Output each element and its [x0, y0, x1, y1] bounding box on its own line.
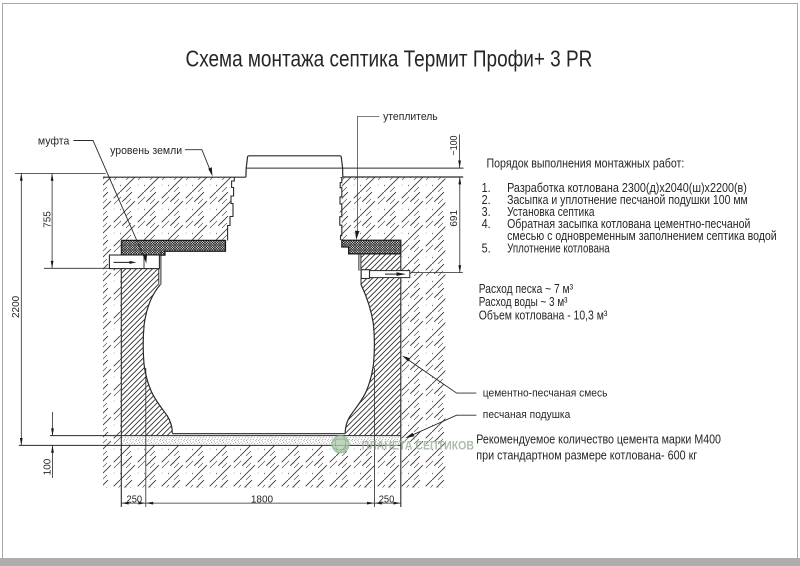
svg-text:муфта: муфта [38, 135, 69, 147]
svg-text:при стандартном размере котлов: при стандартном размере котлована- 600 к… [476, 448, 697, 463]
svg-text:Схема монтажа септика Термит П: Схема монтажа септика Термит Профи+ 3 PR [186, 47, 593, 72]
svg-text:250: 250 [379, 494, 395, 505]
svg-text:ПЛАНЕТА СЕПТИКОВ: ПЛАНЕТА СЕПТИКОВ [362, 440, 474, 452]
svg-text:утеплитель: утеплитель [383, 111, 438, 123]
svg-text:Уплотнение котлована: Уплотнение котлована [507, 242, 610, 256]
svg-text:~100: ~100 [448, 136, 460, 156]
svg-text:Порядок выполнения монтажных р: Порядок выполнения монтажных работ: [487, 155, 685, 170]
svg-text:5.: 5. [482, 240, 491, 255]
svg-text:691: 691 [449, 210, 460, 227]
svg-text:Расход песка ~ 7 м³: Расход песка ~ 7 м³ [479, 282, 573, 296]
svg-text:Рекомендуемое количество цемен: Рекомендуемое количество цемента марки М… [476, 432, 721, 447]
svg-text:1800: 1800 [251, 494, 274, 505]
svg-text:Расход воды ~ 3 м³: Расход воды ~ 3 м³ [479, 296, 568, 309]
svg-text:250: 250 [127, 494, 143, 505]
svg-text:100: 100 [43, 458, 54, 475]
svg-text:цементно-песчаная смесь: цементно-песчаная смесь [483, 387, 608, 399]
svg-text:песчаная подушка: песчаная подушка [483, 409, 571, 421]
svg-text:2200: 2200 [11, 295, 22, 318]
svg-text:4.: 4. [482, 216, 491, 231]
svg-text:755: 755 [42, 211, 53, 228]
svg-text:Объем котлована - 10,3 м³: Объем котлована - 10,3 м³ [479, 308, 608, 322]
svg-text:уровень земли: уровень земли [110, 145, 182, 157]
